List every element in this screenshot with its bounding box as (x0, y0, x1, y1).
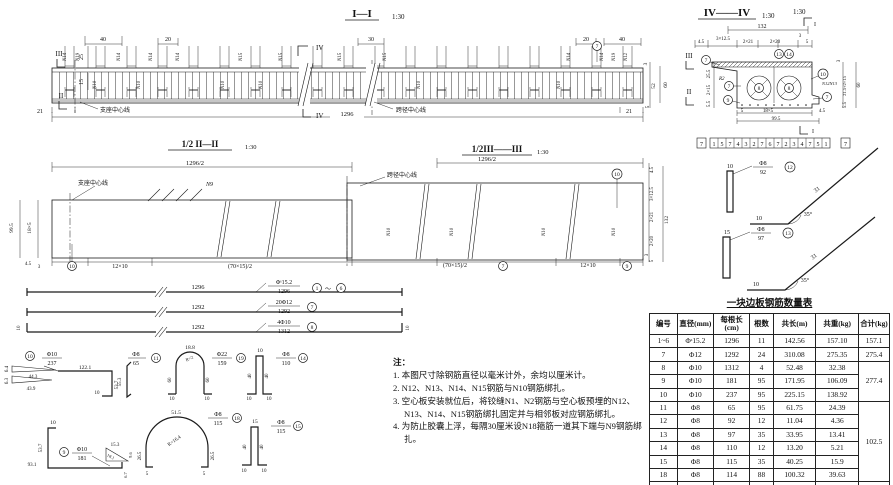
callout-13: 13 (775, 50, 784, 59)
bar-1-6: 1296 Φˢ15.2 1296 1 ～ 6 (27, 280, 402, 297)
callout-1: 1 (313, 284, 322, 293)
overall-length-dim: 1296 (341, 111, 355, 118)
bar-7: 1292 20Φ12 1292 7 (27, 300, 402, 317)
table-row: 18Φ811488100.3239.63 (650, 468, 890, 481)
dim: 3×12.5 (650, 186, 655, 201)
break-mark (155, 307, 167, 317)
dim: 10 (262, 469, 268, 474)
dim: 2×21 (650, 211, 655, 222)
span-centerline-label: 跨径中心线 (387, 171, 417, 179)
break-mark (155, 287, 167, 297)
dim: 99.5 (9, 223, 15, 233)
bar-cut-length: 1296 (278, 289, 290, 295)
bar-length: 1296 (192, 284, 206, 291)
dim: 6.3 (5, 377, 10, 384)
dim: 60 (168, 377, 173, 383)
svg-text:8: 8 (311, 325, 314, 331)
drawing-sheet: I—I 1:30 N14 N19 N14 N14 N14 N15 N15 N15… (0, 0, 893, 485)
bar-cut-length: 65 (133, 361, 139, 367)
section-IV-title: IV——IV (704, 7, 751, 19)
dim: 15 (252, 419, 258, 425)
cut-mark-I-bottom: I (812, 129, 814, 135)
callout-13: 13 (783, 228, 793, 238)
svg-text:12: 12 (787, 165, 793, 171)
dim: 60 (206, 377, 211, 383)
detail-bar-13: 15 Φ8 97 13 31 10 35° (723, 217, 875, 290)
dim: 26.5 (211, 451, 216, 460)
bar-position-strip: 7 1 5 7 4 3 2 7 6 7 2 3 4 7 5 1 7 (697, 138, 850, 148)
section-I-title: I—I (352, 8, 372, 20)
half-span-dim-left: 1296/2 (186, 160, 204, 167)
rebar-table: 编号 直径(mm) 每根长(cm) 根数 共长(m) 共重(kg) 合计(kg)… (649, 313, 890, 485)
callout-10: 10 (68, 244, 77, 271)
dim: 20 (583, 37, 589, 43)
dim: 3 (799, 34, 802, 39)
dim: 10 (753, 282, 759, 288)
svg-text:1: 1 (713, 142, 716, 148)
dim: 2×20 (770, 40, 781, 45)
svg-text:10: 10 (69, 264, 75, 270)
dim: 10 (257, 348, 263, 354)
dim: 40 (619, 37, 625, 43)
dim: 25.5 (707, 69, 712, 78)
rebar-label: N10 (221, 80, 226, 90)
dim: 21.5+2×15 (842, 75, 847, 95)
dim: (70×15)/2 (443, 262, 467, 269)
dim: 3 (645, 253, 650, 256)
svg-text:10: 10 (614, 172, 620, 178)
svg-text:3: 3 (745, 142, 748, 148)
dim: 4.5 (819, 109, 826, 114)
bar-spec: Φ8 (757, 227, 764, 233)
radius-label: R2 (718, 77, 725, 82)
dim: 2×20 (650, 235, 655, 246)
radius-label: R=2 (185, 355, 194, 363)
beam-elevation (52, 46, 643, 115)
dim: 31 (813, 186, 821, 194)
dim: 5 (645, 105, 651, 108)
svg-text:7: 7 (502, 264, 505, 270)
rebar-label: N10 (387, 227, 392, 237)
dim: 18×5 (763, 109, 774, 114)
dim: 12×10 (580, 263, 595, 269)
table-row: 14Φ81101213.205.21 (650, 442, 890, 455)
table-row: 12Φ8921211.044.36 (650, 415, 890, 428)
bar-spec: Φ8 (282, 352, 289, 358)
rebar-label: N15 (279, 52, 284, 62)
detail-bar-14: 10 40 40 10 10 Φ8 110 14 (247, 348, 308, 402)
dim: 15 (724, 230, 730, 236)
dim: 44.3 (29, 375, 38, 380)
dim: 10 (95, 391, 101, 396)
note-item-4: 4. 为防止胶囊上浮，每隔30厘米设N18箍筋一道其下端与N9钢筋绑扎。 (393, 420, 645, 446)
bar-cut-length: 92 (760, 170, 766, 176)
dim: 20 (165, 37, 171, 43)
bar-length: 1292 (192, 324, 205, 331)
note-item-1: 1. 本图尺寸除钢筋直径以毫米计外，余均以厘米计。 (393, 369, 645, 382)
rebar-quantity-table: 一块边板钢筋数量表 编号 直径(mm) 每根长(cm) 根数 共长(m) 共重(… (649, 295, 890, 485)
svg-text:11: 11 (153, 356, 159, 362)
dim: 40 (248, 373, 253, 379)
plan-right-scale: 1:30 (537, 149, 549, 156)
dim: 3×12.5 (716, 37, 731, 42)
dim: 53.7 (39, 443, 44, 452)
callout-8: 8 (308, 323, 317, 332)
dim: 18×5 (27, 222, 33, 234)
cut-mark-IV-top: IV (316, 44, 323, 52)
dim: 5 (650, 259, 655, 262)
rebar-label: N19 (612, 52, 617, 62)
bar-cut-length: 1292 (278, 309, 290, 315)
dim: 55.3 (118, 377, 123, 386)
callout-7: 7 (499, 262, 508, 271)
callout-10: 10 (612, 169, 622, 208)
dim: 30 (368, 37, 374, 43)
break-mark (468, 184, 481, 259)
bar-8: 10 10 1292 4Φ10 1312 8 (17, 320, 411, 337)
bar-spec: Φ8 (277, 420, 284, 426)
table-row: 15Φ81153540.2515.9 (650, 455, 890, 468)
plan-left-scale: 1:30 (245, 144, 257, 151)
rebar-label: N15 (383, 52, 388, 62)
svg-text:13: 13 (785, 231, 791, 237)
rebar-label: N10 (137, 80, 142, 90)
rebar-label: N12 (624, 52, 629, 62)
dim: 10 (170, 397, 176, 402)
dim: 18.8 (185, 345, 195, 351)
svg-text:3: 3 (793, 142, 796, 148)
dim: 3 (837, 59, 842, 62)
cut-mark-II-left: II (59, 92, 64, 100)
svg-text:7: 7 (311, 305, 314, 311)
callout-10: 10 (26, 352, 35, 361)
cut-mark-III-right: III (686, 52, 694, 60)
table-row: 10Φ1023795225.15138.92 (650, 388, 890, 401)
rebar-label: N10 (259, 80, 264, 90)
svg-text:7: 7 (728, 84, 731, 90)
col-header: 共长(m) (773, 314, 816, 335)
bar-cut-length: 181 (78, 456, 87, 462)
detail-bar-9: 10 53.7 9 Φ10 181 93.1 15.3 18.1 9.6 6.7 (28, 420, 133, 478)
cut-mark-I-top: I (814, 22, 816, 28)
dim: 10 (247, 397, 253, 402)
notes: 注： 1. 本图尺寸除钢筋直径以毫米计外，余均以厘米计。 2. N12、N13、… (393, 356, 645, 446)
dim: 10 (756, 216, 762, 222)
dim: 2×21 (743, 40, 754, 45)
callout-8: 8 (785, 84, 794, 93)
plan-grids (52, 176, 643, 266)
n9-hatch-lines (148, 189, 202, 201)
svg-text:4: 4 (801, 142, 804, 148)
callout-15: 15 (294, 422, 303, 431)
dim: 21 (626, 109, 632, 115)
svg-text:9: 9 (63, 450, 66, 456)
detail-bar-11: Φ8 65 11 55.3 (118, 352, 161, 397)
dim: 5 (146, 472, 149, 477)
svg-text:6: 6 (340, 286, 343, 292)
bar-spec: Φ8 (132, 352, 139, 358)
plan-right-dimensions: 4.5 3×12.5 2×21 2×20 3 5 132 (645, 163, 670, 262)
span-centerline-label: 跨径中心线 (396, 106, 426, 114)
dim: 4.5 (650, 166, 655, 173)
dim: 52 (651, 83, 657, 89)
svg-text:7: 7 (596, 44, 599, 50)
rebar-label: N14 (176, 52, 181, 62)
dim: 5 (203, 472, 206, 477)
dim: 99.5 (772, 117, 781, 122)
n9-label: N9 (205, 182, 213, 188)
dim: 60 (857, 82, 862, 88)
svg-text:15: 15 (295, 424, 301, 430)
dim: 26.5 (138, 451, 143, 460)
svg-text:19: 19 (238, 356, 244, 362)
svg-text:2: 2 (753, 142, 756, 148)
callout-7: 7 (308, 303, 317, 312)
cut-mark-II-right: II (687, 88, 692, 96)
table-row: 9Φ1018195171.95106.09 (650, 375, 890, 388)
col-header: 根数 (750, 314, 773, 335)
radius-label: R=16.4 (167, 435, 182, 448)
bar-cut-length: 97 (758, 236, 764, 242)
bar-spec: Φ22 (217, 352, 227, 358)
svg-text:7: 7 (700, 142, 703, 148)
dim: 132 (758, 24, 767, 30)
callout-10: 10 (811, 69, 828, 79)
dim: 10 (242, 469, 248, 474)
callout-9: 9 (60, 448, 69, 457)
svg-text:8: 8 (758, 86, 761, 92)
break-mark (217, 201, 230, 257)
table-row: 13Φ8973533.9513.41 (650, 428, 890, 441)
detail-bar-19: 18.8 R=2 60 60 10 10 Φ22 159 19 (168, 345, 246, 402)
dim: 10 (50, 420, 56, 426)
plan-bottom-dimensions: 10 12×10 (70×15)/2 (70×15)/2 7 12×10 9 (52, 244, 643, 271)
svg-text:1: 1 (825, 142, 828, 148)
rebar-label: N14 (149, 52, 154, 62)
svg-text:8: 8 (788, 86, 791, 92)
rebar-label: N10 (557, 80, 562, 90)
dim: 40 (260, 444, 265, 450)
dim: 5.5 (707, 100, 712, 107)
svg-text:2: 2 (785, 142, 788, 148)
notes-heading: 注： (393, 356, 645, 369)
col-header: 共重(kg) (816, 314, 859, 335)
col-header: 每根长(cm) (713, 314, 749, 335)
dim: 3 (38, 265, 41, 270)
dim: 9.6 (128, 451, 133, 457)
table-row: 8Φ101312452.4832.38277.4 (650, 361, 890, 374)
dim: 51.5 (171, 410, 181, 416)
rebar-label: N15 (338, 52, 343, 62)
note-item-2: 2. N12、N13、N14、N15钢筋与N10钢筋绑扎。 (393, 382, 645, 395)
bar-spec: Φˢ15.2 (276, 280, 292, 286)
dim: 122.1 (79, 365, 92, 371)
hook-dim: 10 (406, 325, 411, 331)
callout-14: 14 (299, 354, 308, 363)
secondary-scale: 1:30 (793, 8, 806, 16)
svg-text:18: 18 (234, 416, 240, 422)
svg-text:9: 9 (727, 98, 730, 104)
svg-text:10: 10 (27, 354, 33, 360)
col-header: 合计(kg) (859, 314, 890, 335)
support-centerline-label: 支座中心线 (100, 106, 130, 114)
svg-text:14: 14 (300, 356, 306, 362)
dim: 40 (243, 444, 248, 450)
svg-text:14: 14 (786, 52, 792, 58)
rebar-label: N10 (93, 80, 98, 90)
rebar-label: N10 (612, 227, 617, 237)
dim: 5 (806, 40, 809, 45)
dim: 93.1 (28, 463, 37, 468)
half-span-dim-right: 1296/2 (478, 156, 496, 163)
table-header-row: 编号 直径(mm) 每根长(cm) 根数 共长(m) 共重(kg) 合计(kg) (650, 314, 890, 335)
rebar-pair-label: N12N13 (821, 81, 838, 86)
bar-cut-length: 115 (277, 429, 286, 435)
rebar-label: N14 (567, 52, 572, 62)
col-header: 直径(mm) (677, 314, 713, 335)
svg-text:7: 7 (761, 142, 764, 148)
dim: 15.3 (111, 443, 120, 448)
dim: 40 (100, 37, 106, 43)
dim: 15 (79, 79, 85, 85)
straight-bar-diagrams: 1296 Φˢ15.2 1296 1 ～ 6 1292 20Φ12 1292 7… (17, 280, 411, 337)
bar-cut-length: 237 (48, 361, 57, 367)
rebar-label: N14 (600, 52, 605, 62)
plan-view: 1/2 II—II 1:30 1/2III——III 1:30 1296/2 1… (9, 139, 670, 271)
dim: 5 (741, 109, 744, 114)
note-item-3: 3. 空心板安装就位后，将铰缝N1、N2钢筋与空心板预埋的N12、N13、N14… (393, 395, 645, 421)
table-row: 1~6Φˢ15.2129611142.56157.10157.1 (650, 335, 890, 348)
svg-text:7: 7 (729, 142, 732, 148)
break-mark (155, 327, 167, 337)
break-mark (566, 184, 579, 259)
svg-text:7: 7 (809, 142, 812, 148)
dim: 40 (265, 373, 270, 379)
svg-text:7: 7 (777, 142, 780, 148)
svg-text:10: 10 (820, 72, 826, 78)
range-tilde: ～ (325, 287, 331, 293)
detail-bar-10: 10 Φ10 237 6.4 44.3 6.3 43.9 122.1 53.7 … (5, 352, 120, 397)
table-row: 11Φ8659561.7524.39102.5 (650, 401, 890, 414)
rebar-label: N14 (63, 52, 68, 62)
callout-12: 12 (785, 162, 795, 172)
callout-8: 8 (755, 84, 764, 93)
section-I-I-view: I—I 1:30 N14 N19 N14 N14 N14 N15 N15 N15… (37, 8, 694, 122)
dim: 10 (267, 397, 273, 402)
dim: 6.4 (5, 365, 10, 372)
detail-bar-15: 15 40 40 10 10 Φ8 115 15 (242, 419, 303, 474)
dim: 25 (79, 54, 85, 60)
dim: 12×10 (112, 264, 127, 270)
bar-spec: 20Φ12 (276, 300, 292, 306)
dim: 60 (663, 82, 669, 88)
svg-text:5: 5 (817, 142, 820, 148)
bar-spec: Φ8 (759, 161, 766, 167)
svg-text:7: 7 (705, 58, 708, 64)
dim: 5.5 (843, 101, 848, 108)
bar-spec: Φ10 (47, 352, 57, 358)
xsec-top-dimensions: 132 4.5 3×12.5 2×21 2×20 3 5 (695, 24, 812, 48)
dim: 2×15 (707, 84, 712, 95)
svg-text:9: 9 (626, 264, 629, 270)
dim: 6.7 (123, 471, 128, 477)
callout-11: 11 (152, 354, 161, 363)
section-IV-IV-view: IV——IV 1:30 1:30 I 132 4.5 3×12.5 2×21 2… (695, 7, 862, 148)
break-mark (416, 184, 429, 259)
svg-text:6: 6 (769, 142, 772, 148)
dim: 132 (664, 216, 670, 225)
section-I-scale: 1:30 (392, 13, 405, 21)
dim: 4.5 (25, 262, 32, 267)
plan-left-dimensions: 99.5 18×5 4.5 3 (9, 200, 41, 270)
bar-spec: Φ10 (77, 447, 87, 453)
dim: 21 (37, 109, 43, 115)
section-IV-scale: 1:30 (762, 12, 775, 20)
table-row: 7Φ12129224310.08275.35275.4 (650, 348, 890, 361)
bar-spec: 4Φ10 (277, 320, 290, 326)
svg-text:1: 1 (316, 286, 319, 292)
rebar-label: N15 (239, 52, 244, 62)
angle-label: 35° (801, 277, 810, 284)
hook-dim: 10 (17, 325, 22, 331)
plan-left-title: 1/2 II—II (182, 139, 219, 149)
rebar-label: N10 (417, 80, 422, 90)
callout-6: 6 (337, 284, 346, 293)
plan-right-title: 1/2III——III (472, 144, 523, 154)
dim: (70×15)/2 (228, 263, 252, 270)
svg-text:7: 7 (844, 142, 847, 148)
svg-text:4: 4 (737, 142, 740, 148)
svg-text:5: 5 (721, 142, 724, 148)
rebar-label: N10 (542, 227, 547, 237)
dim: 4.5 (698, 40, 705, 45)
support-centerline-label: 支座中心线 (78, 179, 108, 187)
dim: 3 (643, 62, 649, 65)
cut-mark-III-left: III (56, 50, 64, 58)
dim: 31 (810, 253, 818, 261)
col-header: 编号 (650, 314, 678, 335)
bar-cut-length: 110 (282, 361, 291, 367)
callout-9: 9 (623, 262, 632, 271)
dim: 10 (205, 397, 211, 402)
svg-text:13: 13 (776, 52, 782, 58)
dim: 43.9 (27, 387, 36, 392)
svg-text:7: 7 (826, 95, 829, 101)
bar-spec: Φ8 (214, 412, 221, 418)
bar-cut-length: 115 (214, 421, 223, 427)
callout-18: 18 (233, 414, 242, 423)
callout-19: 19 (237, 354, 246, 363)
rebar-label: N14 (117, 52, 122, 62)
break-mark (267, 201, 280, 257)
detail-bar-18: 51.5 R=16.4 26.5 26.5 5 5 Φ8 115 18 (138, 410, 242, 477)
dim: 10 (727, 164, 733, 170)
rebar-label: N10 (450, 227, 455, 237)
bar-cut-length: 1312 (278, 329, 290, 335)
bar-cut-length: 159 (218, 361, 227, 367)
bar-length: 1292 (192, 304, 205, 311)
angle-label: 35° (804, 211, 813, 218)
table-title: 一块边板钢筋数量表 (649, 295, 890, 309)
cut-mark-IV-bottom: IV (316, 112, 323, 120)
detail-bar-12: 10 Φ8 92 12 31 10 35° (727, 148, 878, 224)
callout-14: 14 (785, 50, 794, 59)
